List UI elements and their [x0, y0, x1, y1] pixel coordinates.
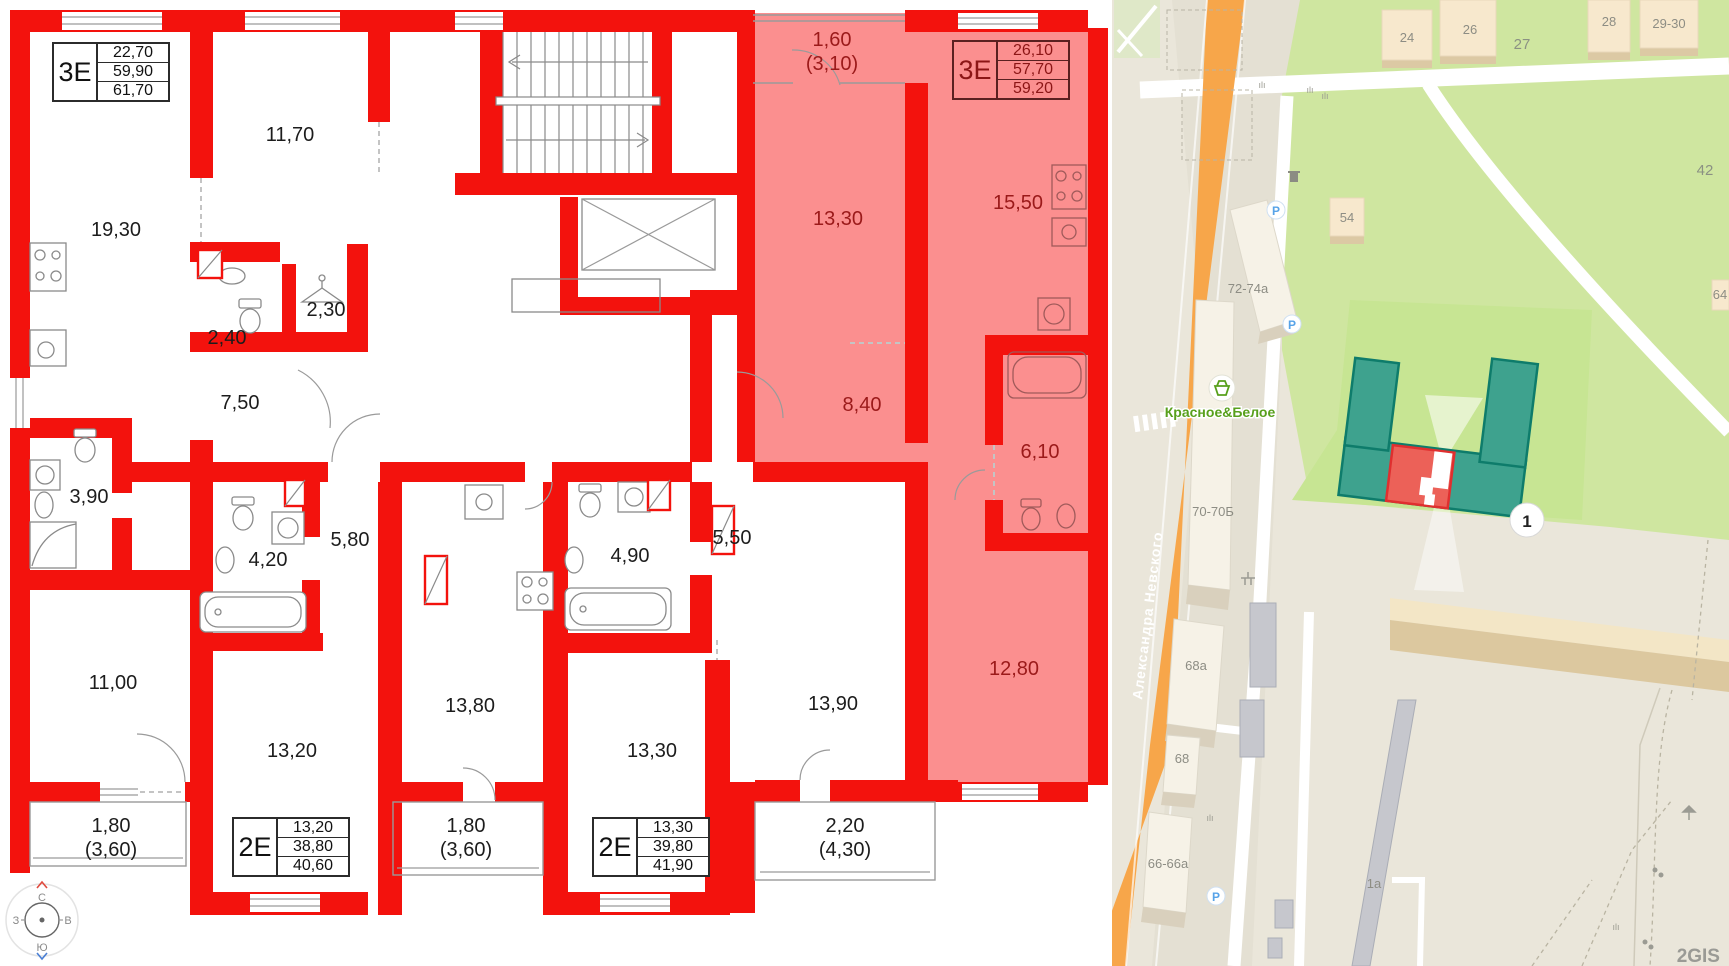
balcony-label-mid: 1,80	[447, 815, 486, 837]
building-42-label[interactable]: 42	[1697, 162, 1714, 179]
svg-text:64: 64	[1713, 287, 1727, 302]
apartment-table-2e-left: 2Е 13,20 38,80 40,60	[232, 817, 350, 877]
room-label-4-90: 4,90	[611, 545, 650, 567]
room-label-5-80: 5,80	[331, 529, 370, 551]
svg-text:24: 24	[1400, 30, 1414, 45]
room-label-2-30: 2,30	[307, 299, 346, 321]
svg-text:1а: 1а	[1367, 876, 1382, 891]
building-27-label[interactable]: 27	[1514, 36, 1531, 53]
apartment-kitchen-area: 22,70	[98, 44, 168, 63]
apartment-total-area: 59,20	[998, 80, 1068, 98]
map-marker-1[interactable]: 1	[1510, 503, 1544, 537]
apartment-table-2e-right: 2Е 13,30 39,80 41,90	[592, 817, 710, 877]
compass-east: В	[64, 915, 71, 927]
svg-text:ılı: ılı	[1206, 813, 1213, 823]
park-entrance	[1114, 0, 1160, 58]
svg-text:54: 54	[1340, 210, 1354, 225]
svg-text:ılı: ılı	[1321, 91, 1328, 101]
building-29-30[interactable]: 29-30	[1640, 0, 1698, 56]
apartment-living-area: 57,70	[998, 61, 1068, 80]
room-label-4-20: 4,20	[249, 549, 288, 571]
room-label-3-90: 3,90	[70, 486, 109, 508]
kitchen-sink-icon	[30, 330, 66, 366]
svg-text:66-66а: 66-66а	[1148, 856, 1189, 871]
balcony-label-right: 2,20	[826, 815, 865, 837]
apartment-kitchen-area: 13,30	[638, 819, 708, 838]
room-label-19-30: 19,30	[91, 219, 141, 241]
building-28[interactable]: 28	[1588, 0, 1630, 60]
room-label-13-80: 13,80	[445, 695, 495, 717]
apartment-type: 2Е	[594, 819, 638, 875]
room-label-11-70: 11,70	[266, 124, 315, 146]
map-watermark: 2GIS	[1677, 946, 1720, 966]
balcony-label-1-60: 1,60	[813, 29, 852, 51]
apartment-total-area: 41,90	[638, 857, 708, 875]
svg-text:28: 28	[1602, 14, 1616, 29]
elevator-shaft	[512, 199, 715, 312]
room-label-11-00: 11,00	[89, 672, 138, 694]
store-icon	[1209, 375, 1235, 401]
room-label-13-30: 13,30	[627, 740, 677, 762]
apartment-total-area: 40,60	[278, 857, 348, 875]
room-label-13-90: 13,90	[808, 693, 858, 715]
building-54[interactable]: 54	[1330, 198, 1364, 244]
apartment-type: 3Е	[54, 44, 98, 100]
svg-text:P: P	[1212, 890, 1220, 904]
svg-text:72-74а: 72-74а	[1228, 281, 1269, 296]
svg-text:P: P	[1272, 204, 1280, 218]
svg-text:ılı: ılı	[1612, 922, 1619, 932]
kitchen-fixtures-13-80	[465, 485, 553, 610]
room-label-hl-6-10: 6,10	[1021, 441, 1060, 463]
apartment-living-area: 38,80	[278, 838, 348, 857]
svg-text:68: 68	[1175, 751, 1189, 766]
building-64[interactable]: 64	[1712, 280, 1729, 310]
parking-icon-2: P	[1283, 315, 1301, 333]
compass-north: С	[38, 892, 46, 904]
apartment-living-area: 59,90	[98, 63, 168, 82]
apartment-living-area: 39,80	[638, 838, 708, 857]
apartment-kitchen-area: 13,20	[278, 819, 348, 838]
svg-text:ılı: ılı	[1258, 80, 1265, 90]
floor-plan-panel: 19,30 11,70 2,40 2,30 7,50 3,90 11,00 4,…	[0, 0, 1112, 966]
svg-text:ılı: ılı	[1306, 85, 1313, 95]
selected-section[interactable]	[1386, 445, 1454, 508]
apartment-type: 2Е	[234, 819, 278, 875]
room-label-2-40: 2,40	[208, 327, 247, 349]
apartment-table-3e-highlighted[interactable]: 3Е 26,10 57,70 59,20	[952, 40, 1070, 100]
compass-west: З	[13, 915, 20, 927]
hanger-icon	[302, 275, 342, 302]
apartment-type: 3Е	[954, 42, 998, 98]
apartment-kitchen-area: 26,10	[998, 42, 1068, 61]
parking-icon-1: P	[1267, 201, 1285, 219]
building-26[interactable]: 26	[1440, 0, 1496, 64]
svg-text:P: P	[1288, 318, 1296, 332]
kitchen-stove-icon	[30, 243, 66, 291]
bathroom-fixtures-2-40	[219, 268, 261, 333]
room-label-hl-15-50: 15,50	[993, 192, 1043, 214]
svg-text:68а: 68а	[1185, 658, 1207, 673]
room-label-hl-12-80: 12,80	[989, 658, 1039, 680]
apartment-table-3e-left: 3Е 22,70 59,90 61,70	[52, 42, 170, 102]
building-68a[interactable]: 68а	[1165, 619, 1224, 748]
balcony-label-mid-total: (3,60)	[440, 839, 492, 861]
building-24[interactable]: 24	[1382, 10, 1432, 68]
parking-icon-3: P	[1207, 887, 1225, 905]
svg-text:26: 26	[1463, 22, 1477, 37]
svg-text:29-30: 29-30	[1652, 16, 1685, 31]
balcony-label-left-total: (3,60)	[85, 839, 137, 861]
balcony-label-1-60-total: (3,10)	[806, 53, 858, 75]
svg-text:70-70Б: 70-70Б	[1192, 504, 1234, 519]
room-label-13-20: 13,20	[267, 740, 317, 762]
room-label-5-50: 5,50	[713, 527, 752, 549]
compass-south: Ю	[36, 942, 47, 954]
screenshot-root: 19,30 11,70 2,40 2,30 7,50 3,90 11,00 4,…	[0, 0, 1729, 966]
room-label-hl-13-30: 13,30	[813, 208, 863, 230]
balcony-label-right-total: (4,30)	[819, 839, 871, 861]
apartment-total-area: 61,70	[98, 82, 168, 100]
room-label-hl-8-40: 8,40	[843, 394, 882, 416]
map-panel[interactable]: 24 26 27 28 29-30 42 54 64	[1112, 0, 1729, 966]
compass-rose: С В Ю З	[6, 882, 78, 959]
building-68[interactable]: 68	[1161, 735, 1200, 808]
svg-text:1: 1	[1522, 512, 1531, 531]
building-66-66a[interactable]: 66-66а	[1141, 812, 1192, 928]
stairs	[496, 32, 660, 173]
balcony-label-left: 1,80	[92, 815, 131, 837]
map-canvas[interactable]: 24 26 27 28 29-30 42 54 64	[1112, 0, 1729, 966]
floor-plan-drawing: 19,30 11,70 2,40 2,30 7,50 3,90 11,00 4,…	[0, 0, 1112, 966]
room-label-7-50: 7,50	[221, 392, 260, 414]
store-label: Красное&Белое	[1165, 404, 1276, 420]
